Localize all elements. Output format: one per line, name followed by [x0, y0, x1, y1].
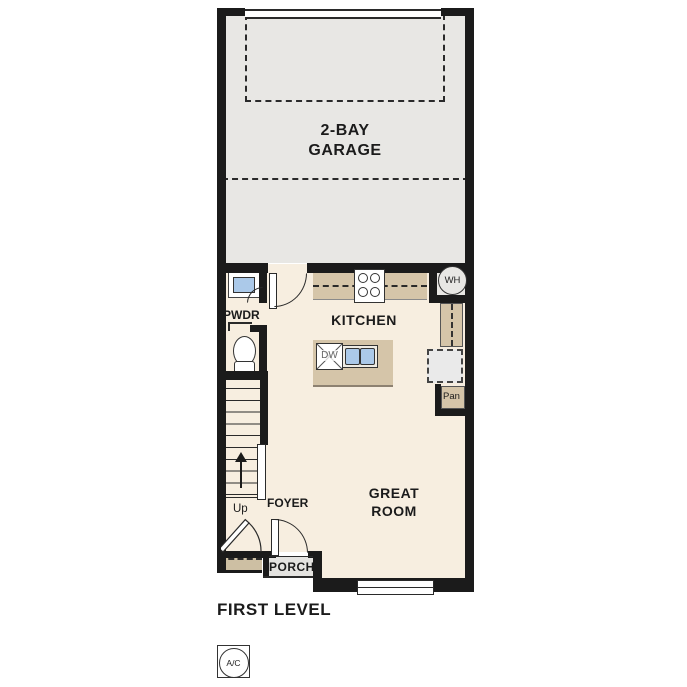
page-title: FIRST LEVEL [217, 600, 331, 620]
great-room-label-line1: GREAT [344, 484, 444, 502]
powder-threshold-tick [228, 322, 230, 331]
stairs-up-arrow-shaft [240, 460, 242, 488]
refrigerator-space [427, 349, 463, 383]
dishwasher-label: DW [317, 350, 342, 361]
pantry-label: Pan [443, 391, 460, 402]
great-room-floor-lower [316, 552, 465, 578]
stair-rail [257, 444, 266, 500]
wall-pantry-bottom [435, 409, 474, 416]
powder-label: PWDR [223, 308, 260, 322]
powder-threshold-line [228, 322, 252, 324]
wall-stairs-top [217, 371, 268, 380]
garage-dashed-line [222, 178, 469, 180]
stoop-bottom-edge [219, 570, 262, 573]
porch-bottom-line [263, 576, 313, 578]
wall-stairs-right [260, 380, 268, 445]
foyer-label: FOYER [267, 496, 308, 510]
great-room-label-line2: ROOM [344, 502, 444, 520]
porch-top-line [269, 556, 313, 557]
wall-powder-bottom-stub [250, 325, 267, 332]
kitchen-label: KITCHEN [314, 312, 414, 328]
staircase-steps [226, 388, 260, 498]
closet-door [221, 510, 265, 556]
garage-label-line2: GARAGE [250, 141, 440, 161]
water-heater-label: WH [439, 275, 466, 286]
stairs-up-arrow-head [235, 452, 247, 462]
wall-wh-nook-bottom [429, 295, 474, 303]
great-room-label: GREAT ROOM [344, 484, 444, 520]
garage-label: 2-BAY GARAGE [250, 121, 440, 161]
garage-label-line1: 2-BAY [250, 121, 440, 141]
up-label: Up [233, 503, 248, 515]
staircase-bottom-edge [226, 497, 260, 498]
ac-label: A/C [220, 658, 248, 668]
great-room-window [357, 580, 434, 595]
garage-door-recess-dashed [245, 14, 445, 102]
ac-symbol: A/C [217, 645, 250, 678]
stove [354, 269, 385, 303]
dishwasher: DW [316, 343, 343, 370]
island-sink [342, 345, 378, 368]
water-heater: WH [438, 266, 467, 295]
ac-circle: A/C [219, 648, 249, 678]
wall-left [217, 8, 226, 573]
floor-plan: DW WH 2-BAY GARAGE KITCHEN GREAT ROOM PW… [0, 0, 687, 687]
cabinet-dashed-line [451, 304, 453, 346]
upper-cabinet [440, 303, 463, 347]
porch-label: PORCH [269, 560, 315, 574]
garage-door [245, 9, 441, 19]
